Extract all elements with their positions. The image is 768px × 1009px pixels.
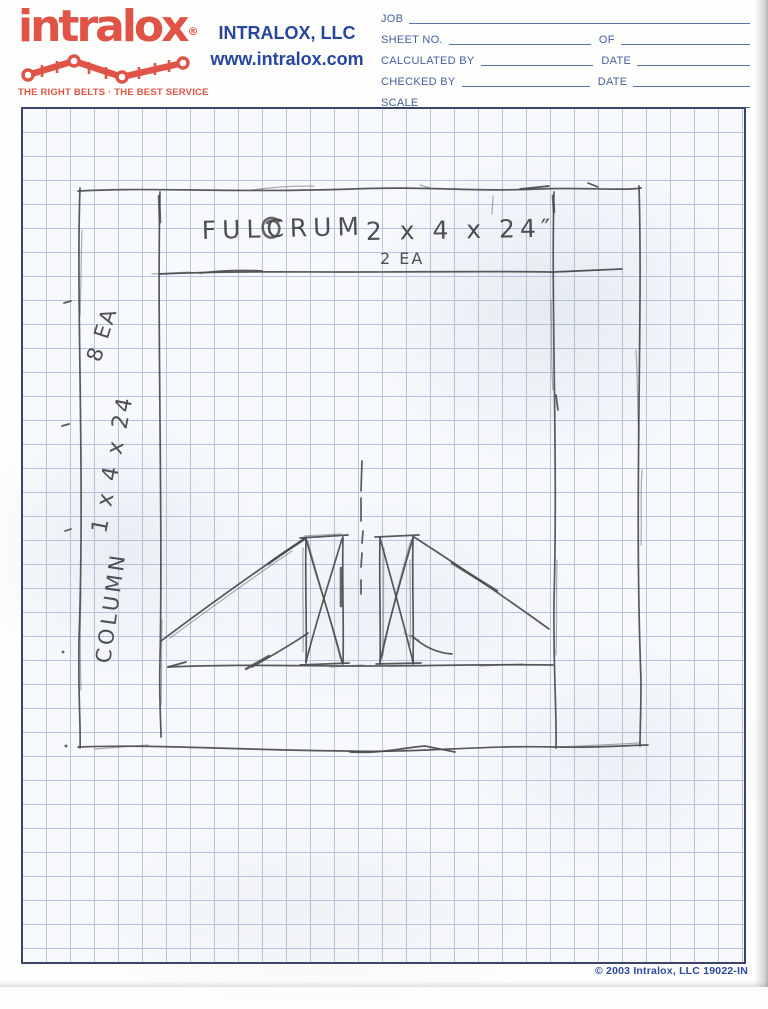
checked-by-blank-line — [462, 72, 590, 87]
job-row: JOB — [381, 7, 752, 27]
company-name: INTRALOX, LLC — [196, 20, 378, 46]
belt-chain-icon — [20, 50, 192, 84]
date-blank-line — [637, 51, 750, 66]
company-website: www.intralox.com — [196, 46, 378, 72]
brand-tagline: THE RIGHT BELTS · THE BEST SERVICE — [18, 87, 203, 98]
calculated-row: CALCULATED BY DATE — [381, 49, 752, 69]
scan-wrinkle-shade — [353, 139, 753, 479]
brand-wordmark: intralox® — [18, 6, 203, 48]
graph-paper — [21, 107, 746, 964]
job-blank-line — [409, 9, 750, 24]
date-blank-line-2 — [633, 72, 750, 87]
title-block-form: JOB SHEET NO. OF CALCULATED BY DATE CHEC… — [381, 7, 752, 112]
checked-row: CHECKED BY DATE — [381, 70, 752, 90]
calculated-by-label: CALCULATED BY — [381, 55, 475, 69]
sheet-row: SHEET NO. OF — [381, 28, 752, 48]
sheet-no-label: SHEET NO. — [381, 34, 443, 48]
checked-by-label: CHECKED BY — [381, 76, 456, 90]
scanned-sketch-page: intralox® THE RIGHT BELTS · TH — [0, 0, 768, 987]
scan-wrinkle-shade — [0, 409, 273, 689]
copyright-notice: © 2003 Intralox, LLC 19022-IN — [595, 965, 748, 977]
intralox-logo: intralox® THE RIGHT BELTS · TH — [18, 6, 203, 98]
scale-blank-line — [425, 93, 750, 108]
page-edge-shadow-bottom — [0, 981, 768, 987]
of-label: OF — [599, 34, 615, 48]
sheet-no-blank-line — [449, 30, 591, 45]
company-block: INTRALOX, LLC www.intralox.com — [196, 20, 378, 72]
scan-wrinkle-shade — [53, 809, 573, 1009]
date-label: DATE — [598, 76, 628, 90]
calculated-by-blank-line — [481, 51, 594, 66]
date-label: DATE — [601, 55, 631, 69]
of-blank-line — [621, 30, 750, 45]
page-edge-shadow-right — [755, 0, 768, 987]
scan-wrinkle-shade — [173, 489, 603, 719]
job-label: JOB — [381, 13, 403, 27]
brand-text: intralox — [18, 1, 187, 52]
scan-wrinkle-shade — [453, 629, 768, 889]
